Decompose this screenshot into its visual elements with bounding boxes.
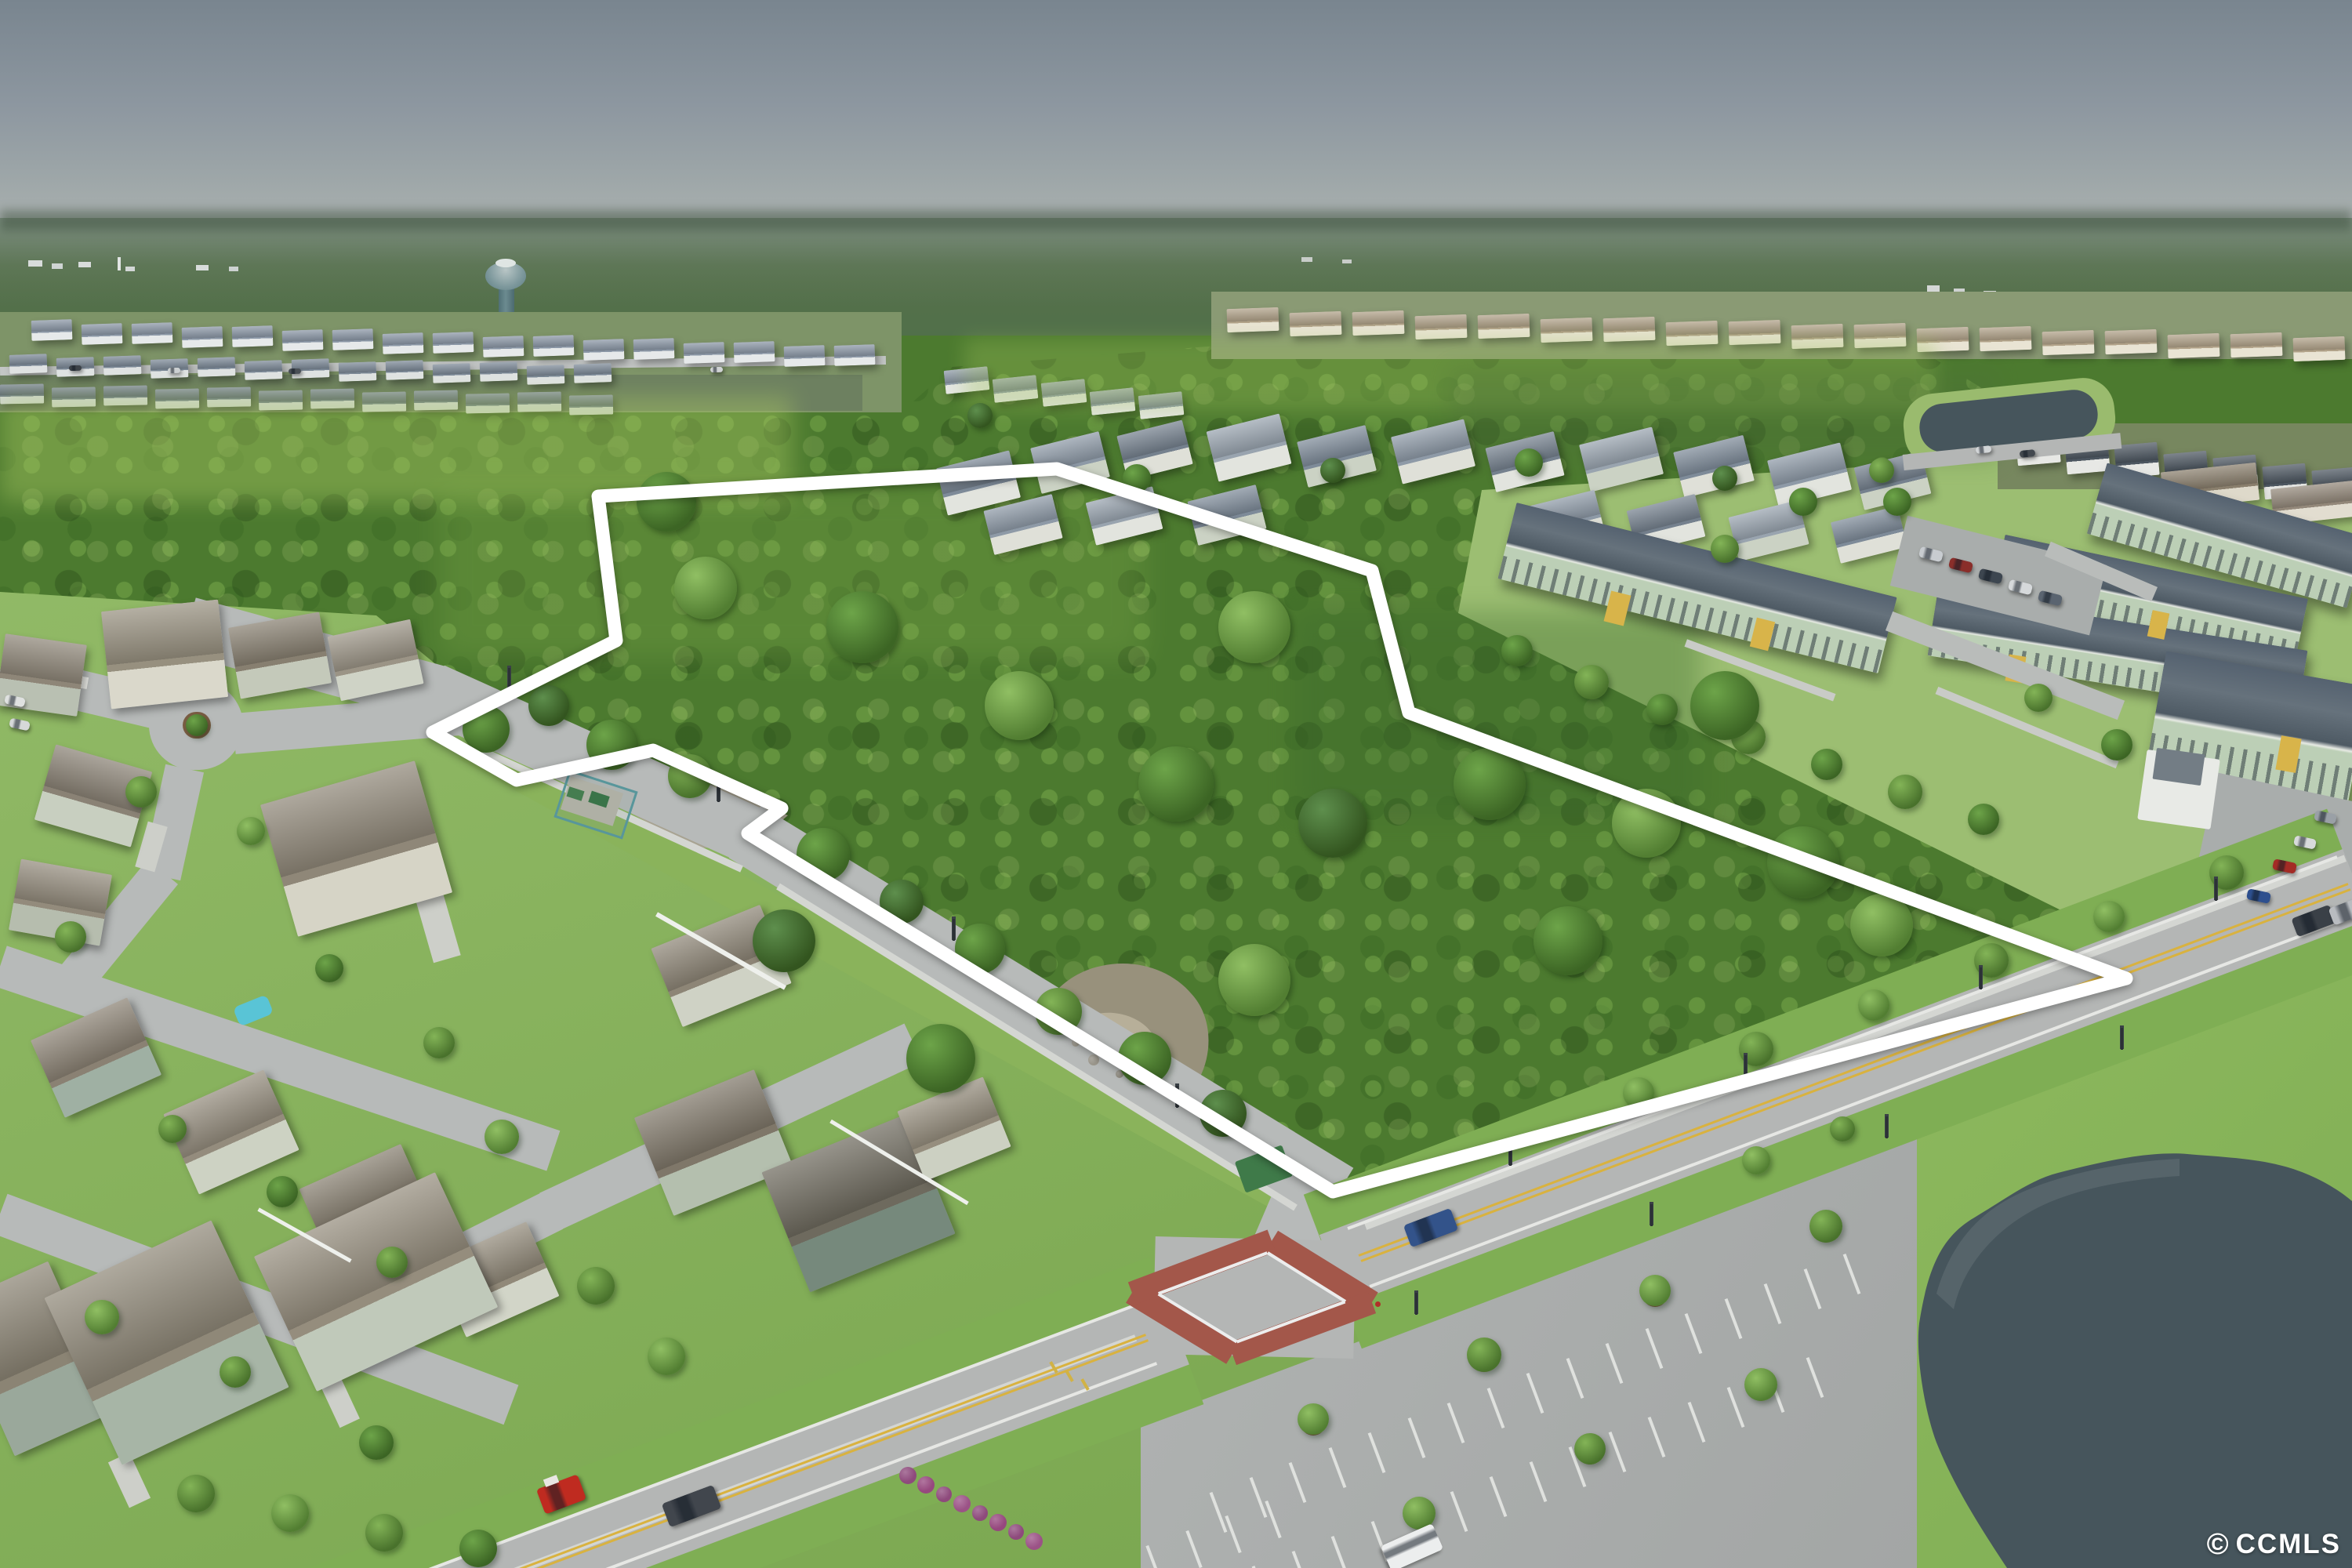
watermark: © CCMLS xyxy=(2207,1529,2341,1560)
copyright-icon: © xyxy=(2207,1530,2229,1559)
parcel-outline xyxy=(433,469,2126,1192)
parcel-outline-layer xyxy=(0,0,2352,1568)
aerial-photo-listing: © CCMLS xyxy=(0,0,2352,1568)
watermark-text: CCMLS xyxy=(2236,1529,2341,1560)
